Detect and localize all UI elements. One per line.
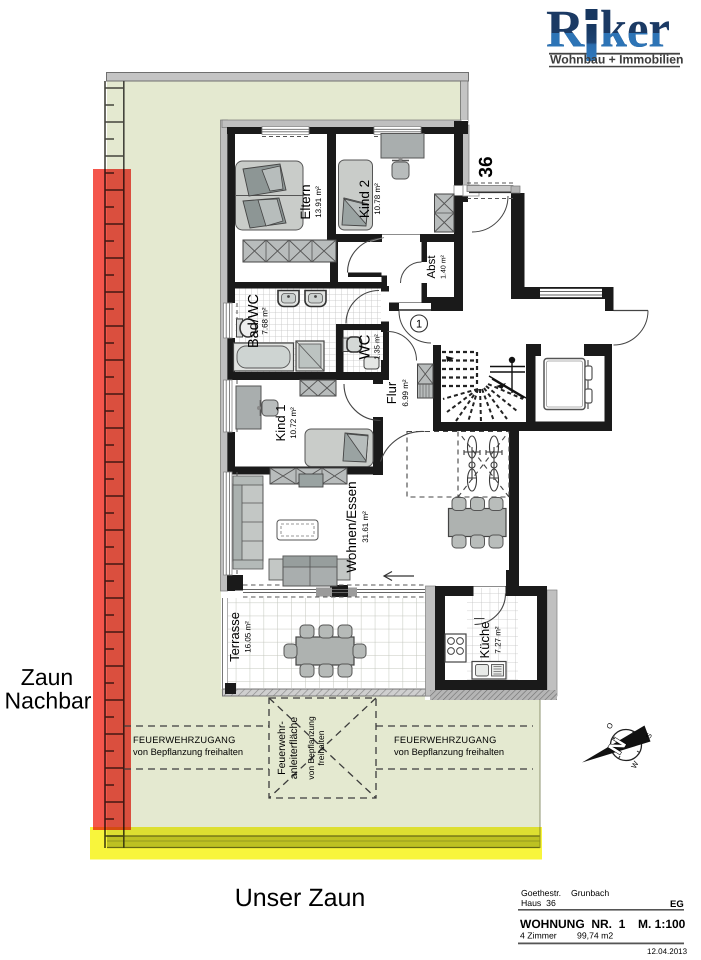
svg-text:Grunbach: Grunbach [571,888,609,898]
svg-text:von Bepflanzung freihalten: von Bepflanzung freihalten [394,747,504,757]
svg-text:31.61 m²: 31.61 m² [361,511,370,543]
svg-text:Flur: Flur [384,381,399,404]
svg-text:M. 1:100: M. 1:100 [638,917,686,931]
svg-text:Feuerwehr-: Feuerwehr- [276,721,288,775]
svg-text:Goethestr.: Goethestr. [521,888,561,898]
svg-text:Zaun: Zaun [21,664,73,690]
svg-text:WC: WC [357,334,374,359]
svg-text:Küche: Küche [477,622,492,659]
svg-text:99,74 m2: 99,74 m2 [577,931,613,941]
svg-text:Abst: Abst [426,255,438,279]
svg-text:1.40 m²: 1.40 m² [441,254,448,278]
svg-text:36: 36 [476,156,497,177]
svg-text:freihalten: freihalten [316,730,326,765]
svg-text:Eltern: Eltern [298,184,313,219]
svg-text:Haus 36: Haus 36 [521,898,556,908]
svg-text:anleiterfläche: anleiterfläche [288,717,300,780]
svg-text:4 Zimmer: 4 Zimmer [520,931,557,941]
svg-text:EG: EG [670,899,684,910]
svg-text:7.27 m²: 7.27 m² [494,626,503,653]
svg-text:12.04.2013: 12.04.2013 [647,947,688,956]
svg-text:WOHNUNG NR. 1: WOHNUNG NR. 1 [520,917,626,931]
svg-text:13.91 m²: 13.91 m² [314,186,323,218]
svg-text:7.68 m²: 7.68 m² [261,307,270,334]
svg-text:von Bepflanzung: von Bepflanzung [306,716,316,780]
svg-text:Wohnbau + Immobilien: Wohnbau + Immobilien [550,53,684,67]
svg-text:1: 1 [416,319,422,331]
svg-text:Kind 1: Kind 1 [273,405,288,442]
svg-text:FEUERWEHRZUGANG: FEUERWEHRZUGANG [394,735,497,745]
svg-text:Nachbar: Nachbar [5,688,92,714]
svg-text:6.99 m²: 6.99 m² [401,379,410,406]
svg-text:Wohnen/Essen: Wohnen/Essen [344,481,359,572]
svg-text:10.78 m²: 10.78 m² [373,183,382,215]
svg-text:16.05 m²: 16.05 m² [244,621,253,653]
svg-text:Terrasse: Terrasse [227,612,242,662]
svg-text:von Bepflanzung freihalten: von Bepflanzung freihalten [133,747,243,757]
svg-text:1.35 m²: 1.35 m² [373,334,382,360]
svg-text:10.72 m²: 10.72 m² [289,407,298,439]
svg-text:FEUERWEHRZUGANG: FEUERWEHRZUGANG [133,735,236,745]
svg-text:Unser Zaun: Unser Zaun [235,884,366,912]
svg-text:Kind 2: Kind 2 [357,180,372,218]
